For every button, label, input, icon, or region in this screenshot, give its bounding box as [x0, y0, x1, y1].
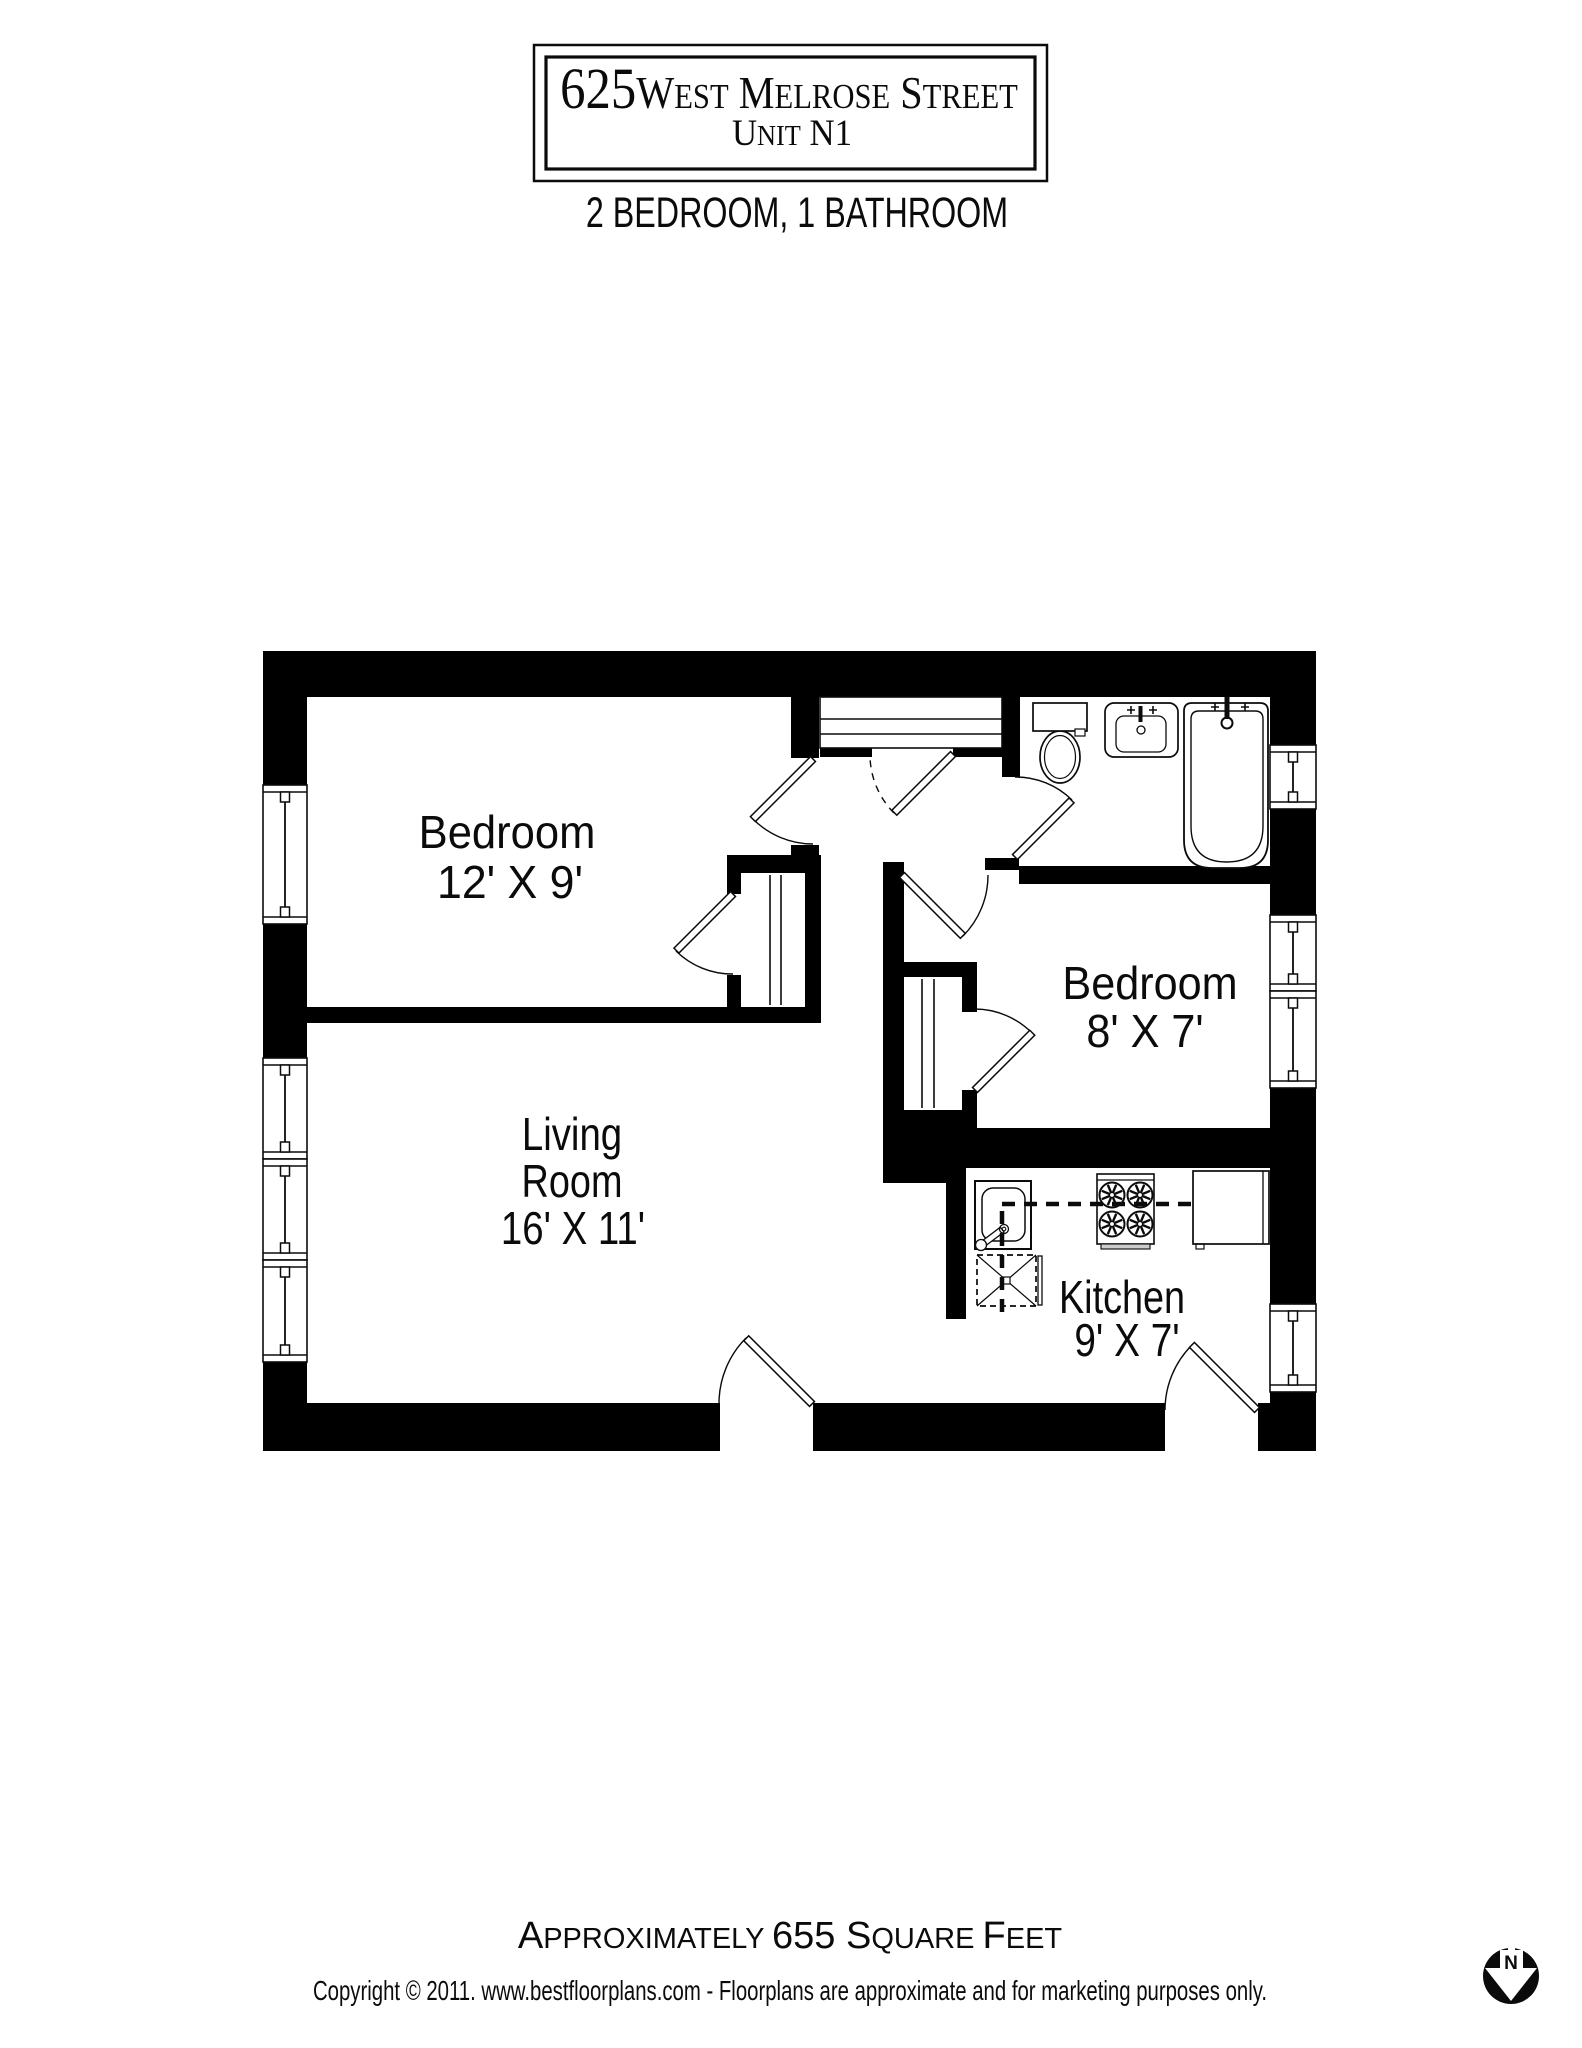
svg-text:Living: Living: [522, 1109, 622, 1160]
svg-text:Bedroom: Bedroom: [1062, 959, 1237, 1010]
svg-text:Room: Room: [522, 1156, 623, 1207]
svg-text:8' X 7': 8' X 7': [1086, 1007, 1203, 1058]
svg-text:Bedroom: Bedroom: [419, 807, 596, 858]
svg-text:12' X 9': 12' X 9': [437, 856, 583, 908]
svg-text:16' X 11': 16' X 11': [501, 1203, 645, 1254]
svg-text:2 BEDROOM, 1 BATHROOM: 2 BEDROOM, 1 BATHROOM: [586, 190, 1008, 238]
svg-text:Copyright © 2011. www.bestfloo: Copyright © 2011. www.bestfloorplans.com…: [313, 1976, 1267, 2007]
svg-text:9' X 7': 9' X 7': [1074, 1315, 1179, 1367]
svg-text:N: N: [1504, 1953, 1518, 1974]
